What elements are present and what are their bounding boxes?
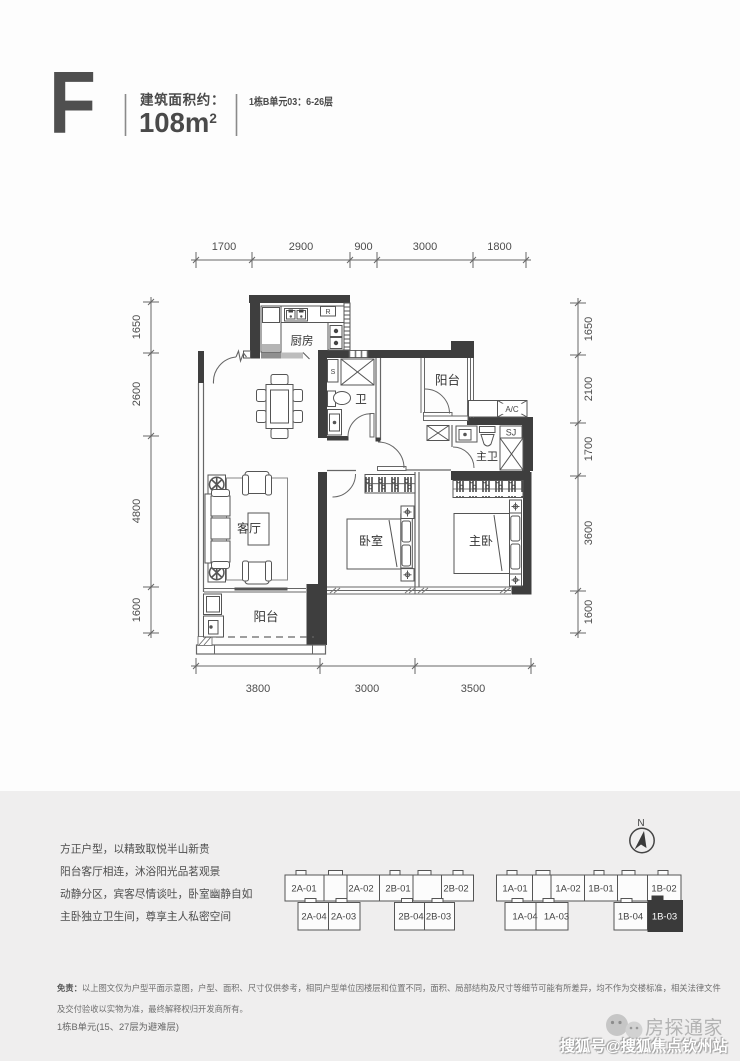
svg-text:房探通家: 房探通家	[645, 1017, 723, 1039]
svg-text:2A-04: 2A-04	[301, 912, 326, 923]
svg-text:1栋B单元(15、27层为避难层): 1栋B单元(15、27层为避难层)	[57, 1021, 179, 1032]
svg-text:A/C: A/C	[505, 405, 519, 414]
svg-text:108m2: 108m2	[139, 107, 217, 138]
svg-text:动静分区，宾客尽情谈吐，卧室幽静自如: 动静分区，宾客尽情谈吐，卧室幽静自如	[60, 888, 252, 901]
svg-text:1B-04: 1B-04	[618, 912, 643, 923]
svg-text:1栋B单元03：6-26层: 1栋B单元03：6-26层	[249, 95, 333, 108]
svg-text:1700: 1700	[212, 241, 236, 253]
svg-text:1B-03: 1B-03	[652, 912, 677, 923]
svg-text:R: R	[325, 309, 330, 316]
svg-text:1A-03: 1A-03	[544, 912, 569, 923]
svg-text:1600: 1600	[583, 600, 595, 624]
svg-text:2100: 2100	[583, 377, 595, 401]
svg-text:1B-01: 1B-01	[588, 884, 613, 895]
svg-text:SJ: SJ	[506, 428, 517, 438]
svg-text:2B-01: 2B-01	[385, 884, 410, 895]
svg-text:3000: 3000	[355, 683, 379, 695]
svg-text:N: N	[637, 818, 644, 829]
svg-text:1A-04: 1A-04	[512, 912, 537, 923]
svg-text:2B-03: 2B-03	[426, 912, 451, 923]
svg-text:厨房: 厨房	[291, 335, 314, 348]
svg-text:3800: 3800	[246, 683, 270, 695]
svg-text:卧室: 卧室	[359, 533, 383, 548]
svg-text:1650: 1650	[583, 317, 595, 341]
svg-text:1A-01: 1A-01	[502, 884, 527, 895]
svg-text:客厅: 客厅	[237, 521, 261, 536]
svg-text:1800: 1800	[487, 241, 511, 253]
svg-text:主卫: 主卫	[476, 450, 498, 463]
svg-text:1B-02: 1B-02	[651, 884, 676, 895]
svg-text:2B-04: 2B-04	[398, 912, 423, 923]
svg-text:2900: 2900	[289, 241, 313, 253]
svg-text:及交付验收以实物为准，最终解释权归开发商所有。: 及交付验收以实物为准，最终解释权归开发商所有。	[57, 1004, 248, 1014]
svg-text:2A-01: 2A-01	[291, 884, 316, 895]
svg-text:阳台客厅相连，沐浴阳光品茗观景: 阳台客厅相连，沐浴阳光品茗观景	[60, 865, 221, 878]
svg-text:2B-02: 2B-02	[443, 884, 468, 895]
svg-text:3000: 3000	[413, 241, 437, 253]
svg-text:1700: 1700	[583, 437, 595, 461]
svg-text:2A-02: 2A-02	[348, 884, 373, 895]
svg-text:900: 900	[354, 241, 372, 253]
svg-text:1600: 1600	[131, 598, 143, 622]
svg-text:主卧: 主卧	[469, 534, 493, 548]
svg-text:3600: 3600	[583, 521, 595, 545]
svg-text:免责：以上图文仅为户型平面示意图，户型、面积、尺寸仅供参考，: 免责：以上图文仅为户型平面示意图，户型、面积、尺寸仅供参考，相同户型单位因楼层和…	[57, 983, 721, 993]
svg-text:2600: 2600	[131, 382, 143, 406]
svg-text:F: F	[49, 53, 96, 152]
svg-text:4800: 4800	[131, 499, 143, 523]
svg-text:3500: 3500	[461, 683, 485, 695]
svg-text:2A-03: 2A-03	[331, 912, 356, 923]
svg-text:1650: 1650	[131, 315, 143, 339]
svg-text:阳台: 阳台	[253, 609, 278, 624]
svg-text:1A-02: 1A-02	[555, 884, 580, 895]
svg-text:卫: 卫	[355, 394, 367, 406]
svg-text:建筑面积约：: 建筑面积约：	[139, 92, 225, 108]
svg-text:主卧独立卫生间，尊享主人私密空间: 主卧独立卫生间，尊享主人私密空间	[60, 910, 231, 923]
svg-text:方正户型，以精致取悦半山新贵: 方正户型，以精致取悦半山新贵	[60, 843, 210, 856]
svg-text:阳台: 阳台	[435, 373, 460, 388]
svg-text:S: S	[331, 369, 336, 376]
svg-text:搜狐号@搜狐焦点钦州站: 搜狐号@搜狐焦点钦州站	[560, 1037, 728, 1055]
